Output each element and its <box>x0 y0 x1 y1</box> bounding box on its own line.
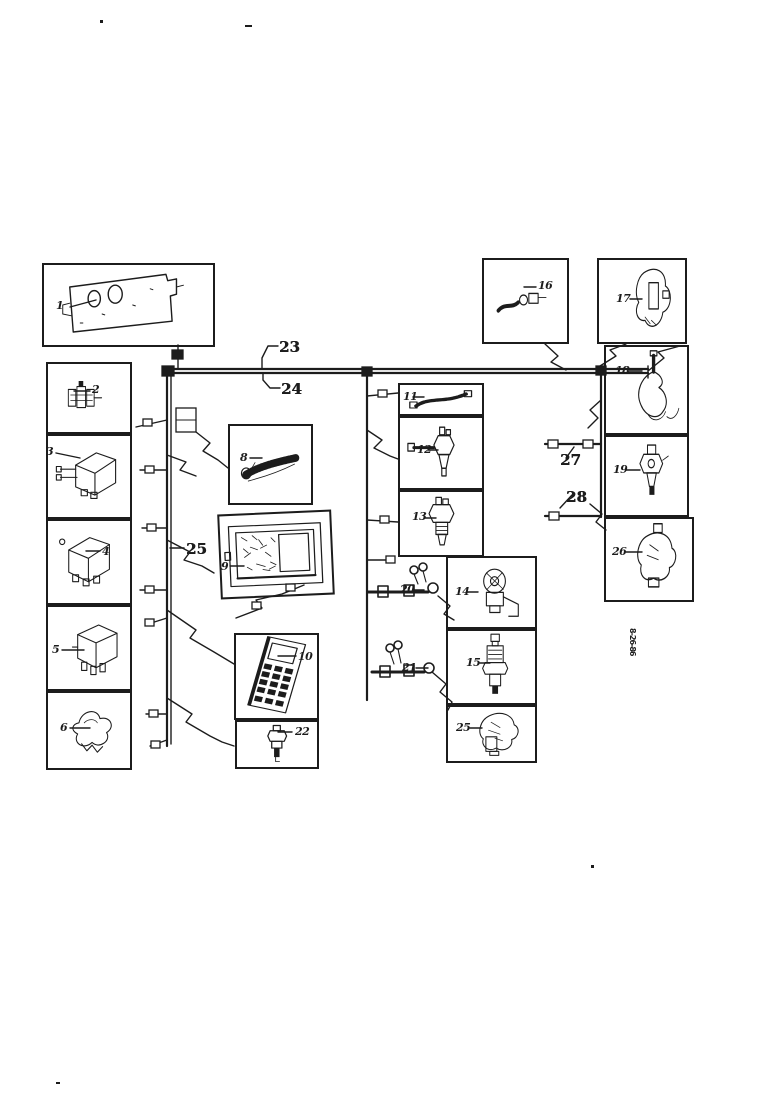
callout-part-22: 22 <box>295 726 309 737</box>
callout-part-20: 20 <box>400 584 414 595</box>
part-box-1 <box>42 263 215 347</box>
part-1-drawing-panel <box>54 269 203 341</box>
part-box-10 <box>234 633 319 720</box>
callout-harness-28: 28 <box>566 490 587 505</box>
callout-part-6: 6 <box>60 722 67 733</box>
callout-part-16: 16 <box>538 280 552 291</box>
scan-speck <box>591 865 594 868</box>
vertical-code: 8-26-86 <box>628 628 637 655</box>
part-19-drawing-sensor <box>621 440 681 512</box>
callout-part-14: 14 <box>455 586 469 597</box>
part-box-13 <box>398 490 484 557</box>
callout-part-13: 13 <box>412 511 426 522</box>
part-box-4 <box>46 519 132 605</box>
callout-part-2: 2 <box>92 384 99 395</box>
part-box-26 <box>604 517 694 602</box>
callout-part-15: 15 <box>466 657 480 668</box>
callout-part-18: 18 <box>615 365 629 376</box>
part-12-drawing-sensor <box>405 422 477 484</box>
part-box-3 <box>46 434 132 519</box>
part-box-18 <box>604 345 689 435</box>
callout-harness-23: 23 <box>279 340 300 355</box>
callout-part-12: 12 <box>417 444 431 455</box>
callout-part-11: 11 <box>403 391 417 402</box>
callout-part-19: 19 <box>613 464 627 475</box>
part-box-15 <box>446 629 537 705</box>
part-17-drawing-switch <box>621 263 681 338</box>
callout-part-3: 3 <box>46 446 53 457</box>
callout-part-17: 17 <box>616 293 630 304</box>
part-box-12 <box>398 416 484 490</box>
callout-harness-25: 25 <box>186 542 207 557</box>
part-5-drawing-relay <box>58 614 124 683</box>
part-box-8 <box>228 424 313 505</box>
part-9-drawing-circuit-board <box>224 517 328 593</box>
scan-speck <box>56 1082 60 1084</box>
part-4-drawing-relay <box>53 528 119 597</box>
callout-part-4: 4 <box>102 546 109 557</box>
callout-harness-27: 27 <box>560 453 581 468</box>
scan-speck <box>245 25 252 27</box>
callout-part-26: 26 <box>612 546 626 557</box>
part-10-drawing-keypad <box>238 637 316 717</box>
part-box-17 <box>597 258 687 344</box>
callout-part-5: 5 <box>52 644 59 655</box>
part-20-drawing-wire-stub <box>366 560 446 604</box>
part-13-drawing-sensor <box>407 495 476 553</box>
parts-diagram-sheet: 1 2 3 4 5 6 8 9 10 11 12 13 14 15 16 17 … <box>0 0 780 1100</box>
part-box-19 <box>604 435 689 517</box>
part-box-16 <box>482 258 569 344</box>
part-26-drawing-solenoid <box>621 522 686 597</box>
callout-part-10: 10 <box>298 651 312 662</box>
callout-part-9: 9 <box>221 561 228 572</box>
callout-part-8: 8 <box>240 452 247 463</box>
part-14-drawing-switch <box>464 561 532 624</box>
callout-part-1: 1 <box>56 300 63 311</box>
part-box-6 <box>46 691 132 770</box>
part-box-9 <box>217 510 335 600</box>
part-box-25 <box>446 705 537 763</box>
callout-part-21: 21 <box>402 662 416 673</box>
part-2-drawing-connector <box>58 374 115 423</box>
part-18-drawing-boot <box>619 350 682 429</box>
part-8-drawing-arm <box>236 441 304 487</box>
scan-speck <box>100 20 103 23</box>
callout-harness-24: 24 <box>281 382 302 397</box>
part-6-drawing-switch <box>58 699 124 762</box>
part-box-2 <box>46 362 132 434</box>
part-25-drawing-solenoid <box>464 709 528 759</box>
part-3-drawing-relay <box>55 442 124 510</box>
callout-part-25: 25 <box>456 722 470 733</box>
